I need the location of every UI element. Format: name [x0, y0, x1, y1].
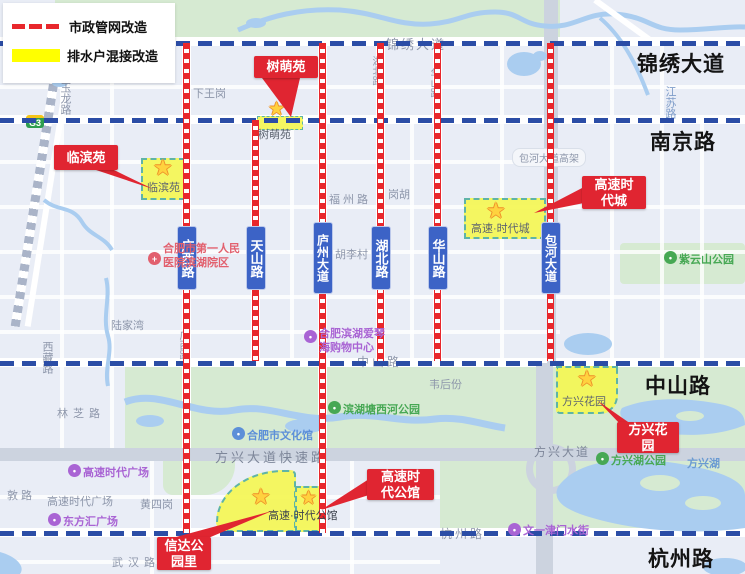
legend-panel: 市政管网改造 排水户混接改造 — [3, 3, 175, 83]
callout-fangxing-huayuan: 方兴花 园 — [617, 422, 679, 453]
callout-text: 临滨苑 — [66, 150, 105, 166]
callout-text: 园里 — [171, 554, 197, 570]
callout-text: 园 — [641, 438, 654, 454]
legend-pipe-label: 市政管网改造 — [69, 17, 147, 36]
callout-text: 代公馆 — [381, 485, 420, 501]
callout-text: 信达公 — [164, 538, 203, 554]
red-dash-swatch — [46, 24, 59, 29]
callout-text: 高速时 — [594, 177, 633, 193]
red-dash-swatch — [29, 24, 42, 29]
callout-text: 方兴花 — [628, 422, 667, 438]
callout-text: 高速时 — [381, 469, 420, 485]
callout-linbinyuan: 临滨苑 — [54, 145, 118, 170]
callout-gaosu-gongguan: 高速时 代公馆 — [367, 469, 434, 500]
callout-shumengyuan: 树萌苑 — [254, 56, 318, 78]
legend-row-pipe: 市政管网改造 — [12, 17, 147, 36]
callout-text: 代城 — [601, 193, 627, 209]
callout-gaosu-shidaicheng: 高速时 代城 — [582, 176, 646, 209]
annotated-city-map: ★ ★ ★ ★ ★ ★ 树萌苑 临滨苑 高速·时代城 方兴花园 高速·时代公馆 … — [0, 0, 745, 574]
yellow-swatch — [12, 49, 60, 62]
callout-text: 树萌苑 — [266, 59, 305, 75]
legend-row-drain: 排水户混接改造 — [12, 46, 158, 65]
callout-xinda-gongyuanli: 信达公 园里 — [157, 537, 211, 570]
legend-drain-label: 排水户混接改造 — [67, 46, 158, 65]
red-dash-swatch — [12, 24, 25, 29]
